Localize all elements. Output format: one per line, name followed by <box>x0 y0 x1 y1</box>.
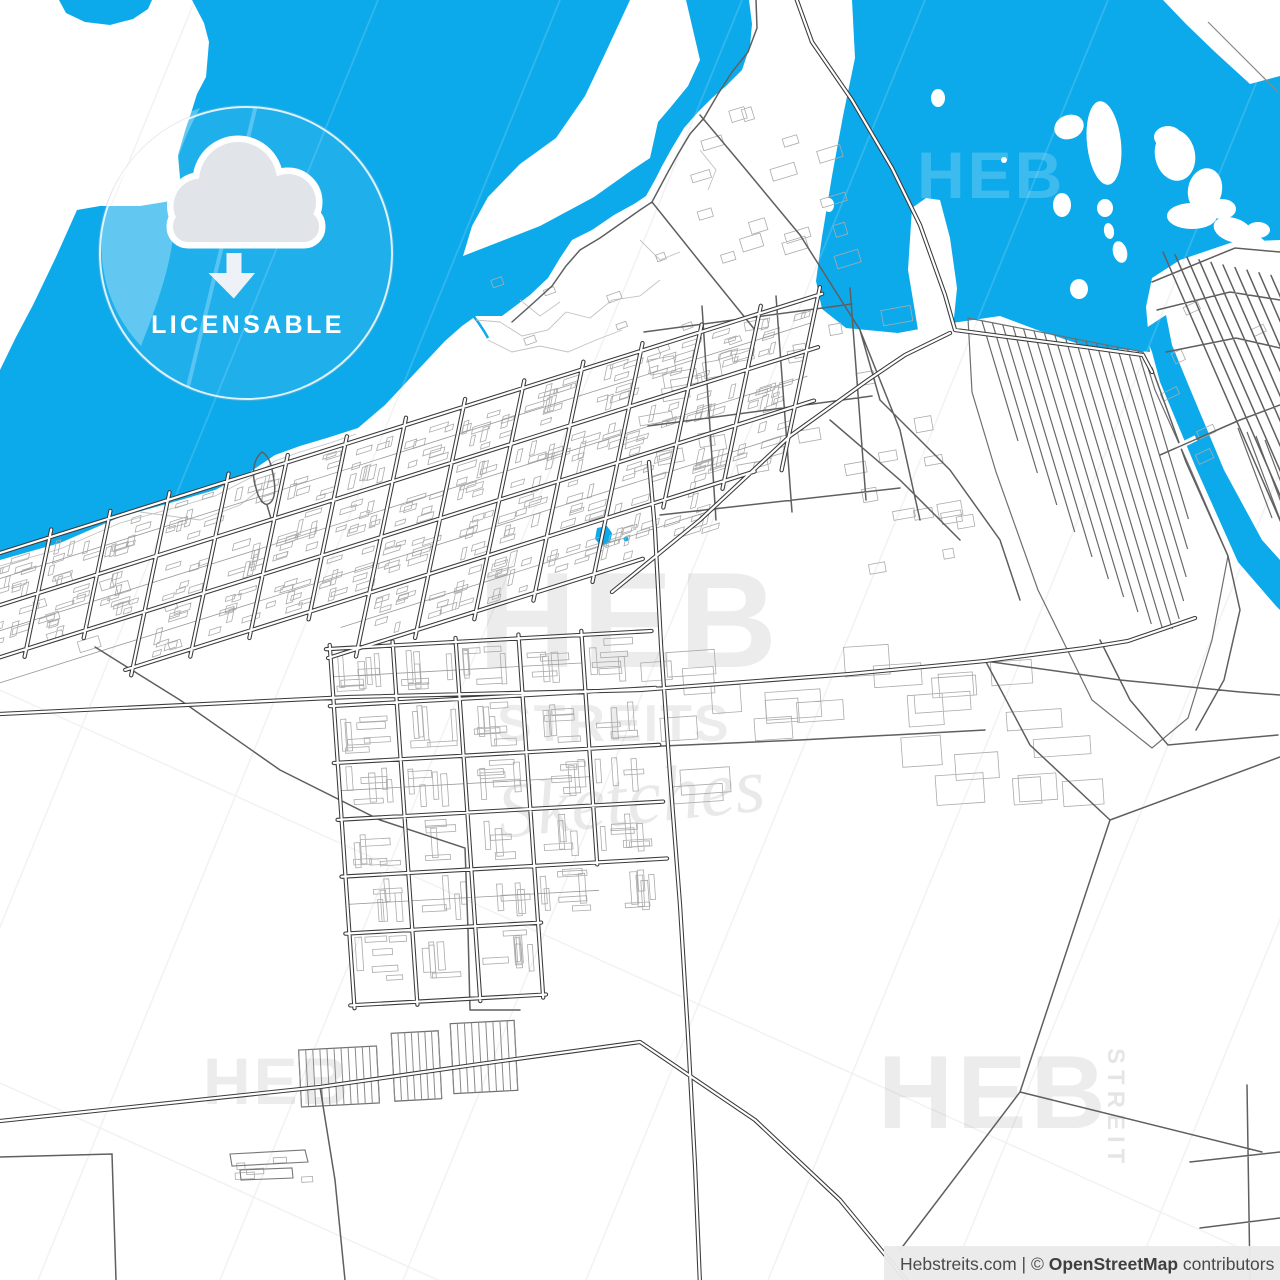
svg-text:HEB: HEB <box>478 544 783 696</box>
svg-text:STREIT: STREIT <box>1102 1048 1129 1169</box>
svg-text:LICENSABLE: LICENSABLE <box>151 311 345 339</box>
svg-text:HEB: HEB <box>878 1035 1110 1151</box>
svg-text:HEB: HEB <box>917 138 1065 212</box>
svg-text:Hebstreits.com | © OpenStreetM: Hebstreits.com | © OpenStreetMap contrib… <box>900 1254 1275 1274</box>
